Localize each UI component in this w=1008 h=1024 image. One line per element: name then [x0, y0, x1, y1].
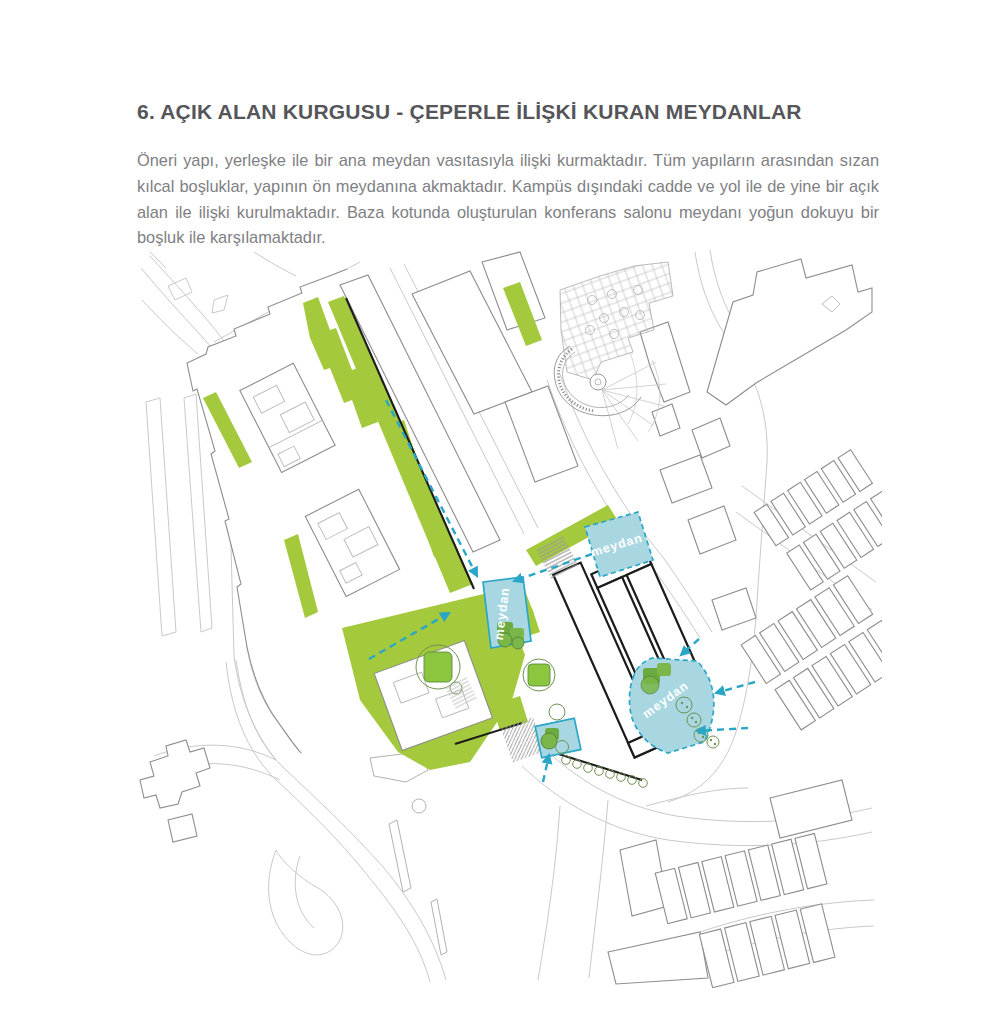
- report-page: 6. AÇIK ALAN KURGUSU - ÇEPERLE İLİŞKİ KU…: [0, 0, 1008, 1024]
- street-tree-row: [562, 756, 648, 788]
- flow-arrow: [716, 682, 755, 693]
- body-paragraph: Öneri yapı, yerleşke ile bir ana meydan …: [137, 148, 879, 251]
- traffic-island: [389, 820, 411, 892]
- text-block: 6. AÇIK ALAN KURGUSU - ÇEPERLE İLİŞKİ KU…: [137, 100, 879, 251]
- flow-arrow: [543, 755, 549, 782]
- cross-building: [140, 740, 210, 808]
- terraced-row: [741, 573, 882, 732]
- traffic-island: [412, 799, 426, 813]
- site-plan-figure: meydan meydan meydan: [130, 243, 882, 988]
- page-title: 6. AÇIK ALAN KURGUSU - ÇEPERLE İLİŞKİ KU…: [137, 100, 879, 124]
